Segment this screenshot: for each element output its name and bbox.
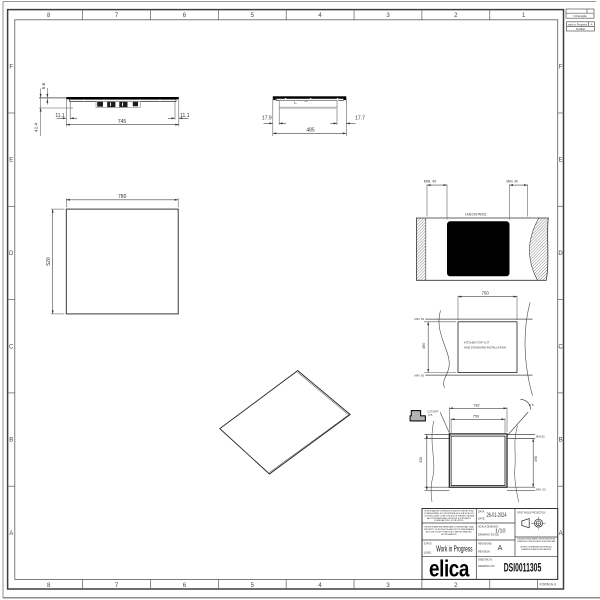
svg-text:520: 520 — [419, 457, 423, 463]
svg-text:DIMENSIONS ARE IN MILLIMETERS: DIMENSIONS ARE IN MILLIMETERS — [521, 548, 552, 551]
svg-text:DRAWING SCALE: DRAWING SCALE — [478, 534, 499, 537]
svg-text:DIMENSION ZONE INDICATED IN MI: DIMENSION ZONE INDICATED IN MILLIMETERS — [517, 540, 556, 543]
svg-text:17.7: 17.7 — [355, 115, 365, 121]
svg-text:E: E — [559, 158, 563, 164]
svg-text:DATA: DATA — [478, 510, 485, 513]
svg-text:DRAWING NO.: DRAWING NO. — [478, 565, 495, 568]
svg-text:DATE: DATE — [478, 518, 485, 521]
svg-text:Work in Progress: Work in Progress — [436, 544, 472, 553]
svg-text:MIN. 50: MIN. 50 — [536, 488, 546, 492]
svg-text:DSI0011305: DSI0011305 — [504, 560, 542, 574]
svg-text:N.Famiglia: N.Famiglia — [574, 14, 587, 18]
svg-text:750: 750 — [482, 290, 490, 295]
svg-text:F: F — [9, 64, 13, 70]
svg-text:R 5: R 5 — [529, 403, 534, 407]
svg-text:782: 782 — [473, 403, 479, 407]
svg-text:485: 485 — [306, 128, 315, 134]
svg-text:17.9: 17.9 — [262, 116, 272, 122]
svg-text:KITCHEN TOP CUT: KITCHEN TOP CUT — [464, 341, 489, 345]
svg-text:DISEGNO N.: DISEGNO N. — [478, 559, 493, 562]
svg-text:MIN. 50: MIN. 50 — [415, 374, 425, 378]
svg-text:780: 780 — [118, 194, 127, 200]
svg-text:N.Mat: N.Mat — [576, 27, 585, 31]
svg-text:REVISION: REVISION — [478, 551, 490, 554]
svg-text:B: B — [9, 438, 13, 444]
svg-text:HOB STANDARD INSTALLATION: HOB STANDARD INSTALLATION — [464, 346, 506, 350]
svg-text:520: 520 — [46, 257, 52, 266]
svg-text:11.1: 11.1 — [180, 113, 190, 119]
svg-text:745: 745 — [118, 119, 127, 125]
svg-text:D: D — [9, 251, 14, 257]
svg-text:A: A — [559, 531, 563, 537]
svg-text:26-01-2024: 26-01-2024 — [487, 513, 507, 519]
svg-text:A: A — [9, 531, 13, 537]
svg-text:MIN. 40: MIN. 40 — [424, 180, 437, 184]
svg-text:F: F — [559, 64, 563, 70]
svg-text:C: C — [9, 344, 14, 350]
svg-text:REVISIONE: REVISIONE — [478, 543, 492, 546]
svg-text:MIN. 40: MIN. 40 — [507, 180, 518, 184]
svg-text:6.5: 6.5 — [428, 413, 432, 417]
svg-text:B: B — [559, 438, 563, 444]
svg-text:LEVEL: LEVEL — [424, 552, 432, 555]
svg-text:C: C — [558, 344, 563, 350]
svg-text:750: 750 — [473, 414, 479, 418]
svg-text:42.4: 42.4 — [33, 123, 38, 132]
svg-text:490: 490 — [534, 456, 538, 462]
svg-text:FIRST ANGLE PROJECTION: FIRST ANGLE PROJECTION — [517, 510, 545, 514]
svg-text:D: D — [558, 251, 563, 257]
svg-text:FORM.A-3: FORM.A-3 — [540, 583, 557, 587]
svg-text:HOB DISTANCE: HOB DISTANCE — [465, 212, 486, 217]
svg-text:A: A — [498, 545, 503, 552]
svg-text:490: 490 — [422, 343, 426, 349]
svg-text:IS PROHIBITED.: IS PROHIBITED. — [441, 534, 457, 536]
svg-text:elica: elica — [429, 556, 470, 582]
svg-text:E: E — [9, 158, 13, 164]
svg-text:work in Progress: work in Progress — [568, 22, 588, 26]
svg-text:5.6: 5.6 — [41, 82, 46, 89]
svg-text:MIN. 50: MIN. 50 — [415, 317, 425, 321]
svg-text:STATO: STATO — [424, 543, 432, 546]
svg-text:11.1: 11.1 — [55, 113, 65, 119]
svg-text:MIN.50: MIN.50 — [536, 434, 545, 438]
svg-text:OGNI ALTRO UTILIZZO.: OGNI ALTRO UTILIZZO. — [434, 519, 465, 522]
